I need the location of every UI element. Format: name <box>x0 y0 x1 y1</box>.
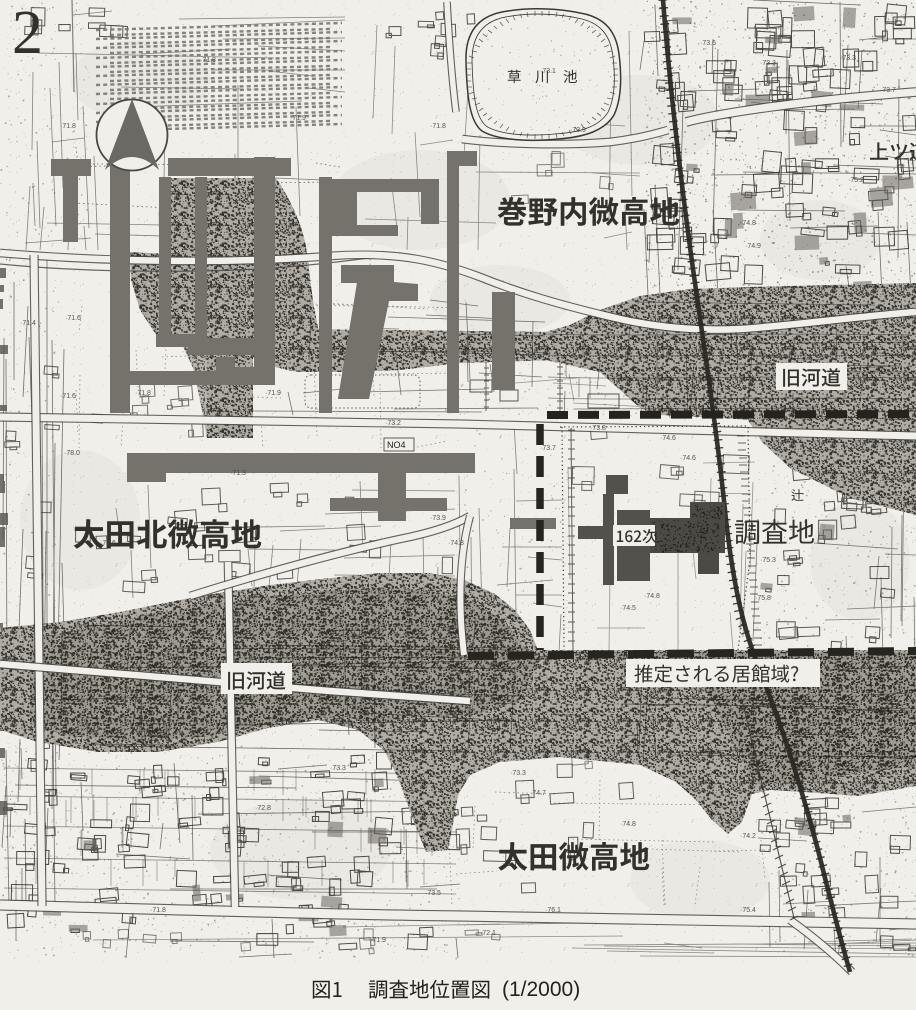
svg-text:·71.9: ·71.9 <box>265 390 281 397</box>
svg-text:·73.5: ·73.5 <box>425 890 441 897</box>
svg-text:·72.4: ·72.4 <box>308 679 324 686</box>
svg-text:·72.2: ·72.2 <box>305 595 321 602</box>
svg-text:·73.3: ·73.3 <box>760 60 776 67</box>
svg-text:(1/2000): (1/2000) <box>502 978 580 1001</box>
svg-text:·74.8: ·74.8 <box>644 593 660 600</box>
svg-text:·71.6: ·71.6 <box>65 315 81 322</box>
svg-text:·73.3: ·73.3 <box>330 765 346 772</box>
svg-text:·74.6: ·74.6 <box>858 290 874 297</box>
svg-text:·75.2: ·75.2 <box>848 177 864 184</box>
svg-text:·71.9: ·71.9 <box>370 937 386 944</box>
svg-text:·71.4: ·71.4 <box>20 320 36 327</box>
svg-text:·71.8: ·71.8 <box>60 123 76 130</box>
svg-text:·76.1: ·76.1 <box>545 907 561 914</box>
svg-text:NO4: NO4 <box>387 440 406 450</box>
svg-text:·74.8: ·74.8 <box>740 220 756 227</box>
svg-text:·73.8: ·73.8 <box>590 425 606 432</box>
svg-text:·73.3: ·73.3 <box>510 770 526 777</box>
svg-text:·74.8: ·74.8 <box>620 821 636 828</box>
svg-text:·73.7: ·73.7 <box>540 445 556 452</box>
svg-text:·74.8: ·74.8 <box>448 540 464 547</box>
svg-text:·71.8: ·71.8 <box>150 907 166 914</box>
svg-text:·73.1: ·73.1 <box>540 68 556 75</box>
svg-text:2: 2 <box>12 0 43 67</box>
svg-text:·74.7: ·74.7 <box>530 790 546 797</box>
svg-text:·74.5: ·74.5 <box>620 605 636 612</box>
svg-text:·73.7: ·73.7 <box>880 87 896 94</box>
svg-text:·73.9: ·73.9 <box>570 127 586 134</box>
svg-text:·73.2: ·73.2 <box>385 420 401 427</box>
svg-text:·71.6: ·71.6 <box>60 393 76 400</box>
svg-text:·71.9: ·71.9 <box>290 115 306 122</box>
svg-text:·73.3: ·73.3 <box>370 625 386 632</box>
svg-text:·73.6: ·73.6 <box>700 40 716 47</box>
svg-text:·78.0: ·78.0 <box>64 450 80 457</box>
svg-text:·73.3: ·73.3 <box>840 55 856 62</box>
svg-text:·71.8: ·71.8 <box>200 57 216 64</box>
svg-text:·72.8: ·72.8 <box>255 805 271 812</box>
svg-text:·71.8: ·71.8 <box>135 390 151 397</box>
svg-text:·71.6: ·71.6 <box>100 540 116 547</box>
svg-text:·75.7: ·75.7 <box>880 475 896 482</box>
svg-text:·74.9: ·74.9 <box>745 243 761 250</box>
svg-text:·75.3: ·75.3 <box>760 557 776 564</box>
svg-text:·75.8: ·75.8 <box>755 595 771 602</box>
svg-text:·75.4: ·75.4 <box>740 907 756 914</box>
svg-text:·73.9: ·73.9 <box>430 515 446 522</box>
svg-text:·74.2: ·74.2 <box>740 833 756 840</box>
svg-text:·74.6: ·74.6 <box>660 435 676 442</box>
svg-text:·72.1: ·72.1 <box>480 930 496 937</box>
svg-text:·71.3: ·71.3 <box>230 470 246 477</box>
svg-text:·71.8: ·71.8 <box>430 123 446 130</box>
svg-text:·74.6: ·74.6 <box>680 455 696 462</box>
svg-text:·74.1: ·74.1 <box>850 767 866 774</box>
